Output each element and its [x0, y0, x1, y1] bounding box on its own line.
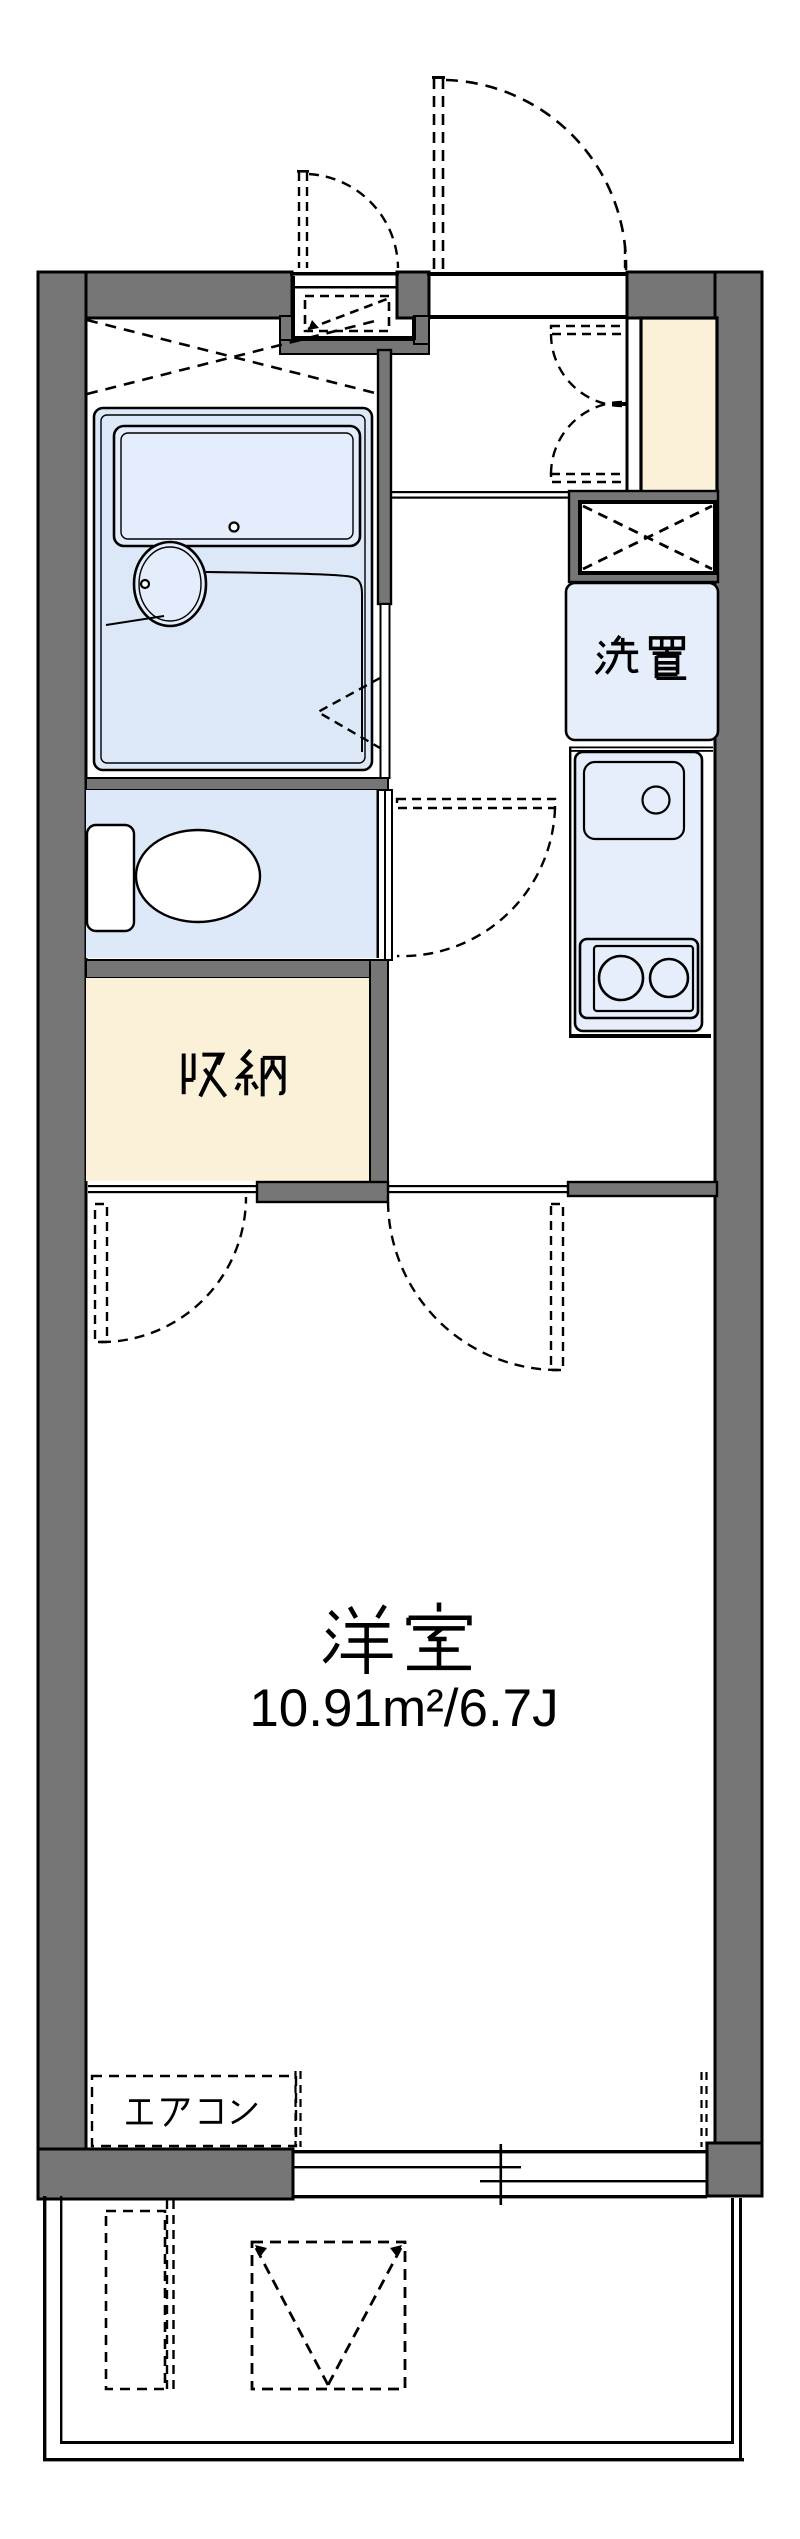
svg-text:10.91m²/6.7J: 10.91m²/6.7J — [249, 1679, 558, 1738]
